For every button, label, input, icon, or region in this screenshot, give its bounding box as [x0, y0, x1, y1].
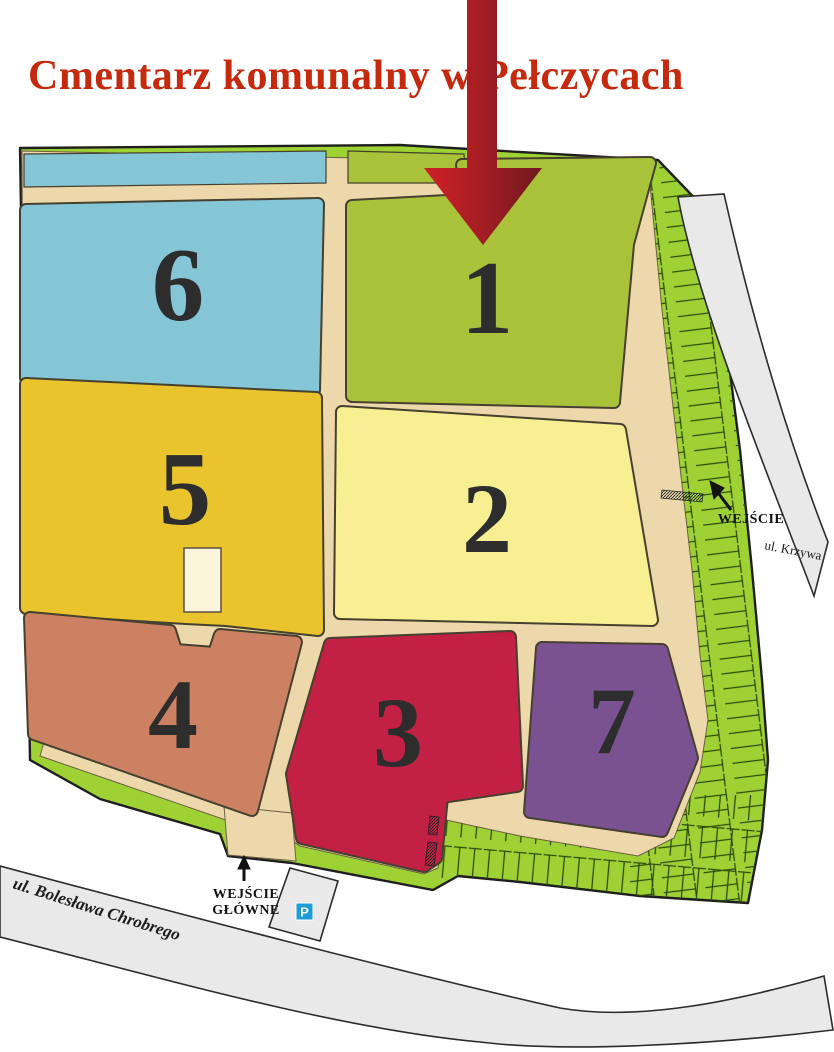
main-entrance-label-1: WEJŚCIE — [213, 885, 280, 902]
section-2: 2 — [340, 412, 652, 620]
main-entrance: WEJŚCIE GŁÓWNE — [212, 856, 280, 918]
building — [184, 548, 221, 612]
section-5: 5 — [26, 384, 318, 630]
parking-letter: P — [300, 905, 309, 920]
cemetery-map-page: 6 1 5 2 4 3 7 — [0, 0, 834, 1052]
cemetery-map: 6 1 5 2 4 3 7 — [0, 0, 834, 1052]
page-title: Cmentarz komunalny w Pełczycach — [28, 53, 684, 99]
section-2-label: 2 — [462, 463, 512, 574]
section-6-label: 6 — [152, 226, 205, 343]
section-1-label: 1 — [461, 239, 514, 356]
main-entrance-path — [224, 806, 296, 861]
section-4-label: 4 — [148, 659, 198, 770]
main-entrance-label-2: GŁÓWNE — [212, 901, 280, 918]
side-entrance-label: WEJŚCIE — [718, 510, 785, 527]
parking-icon: P — [296, 903, 313, 920]
section-7: 7 — [530, 648, 692, 831]
section-7-label: 7 — [588, 668, 636, 774]
section-3-label: 3 — [373, 677, 423, 788]
gate-small-1 — [428, 816, 439, 835]
section-5-label: 5 — [159, 430, 212, 547]
